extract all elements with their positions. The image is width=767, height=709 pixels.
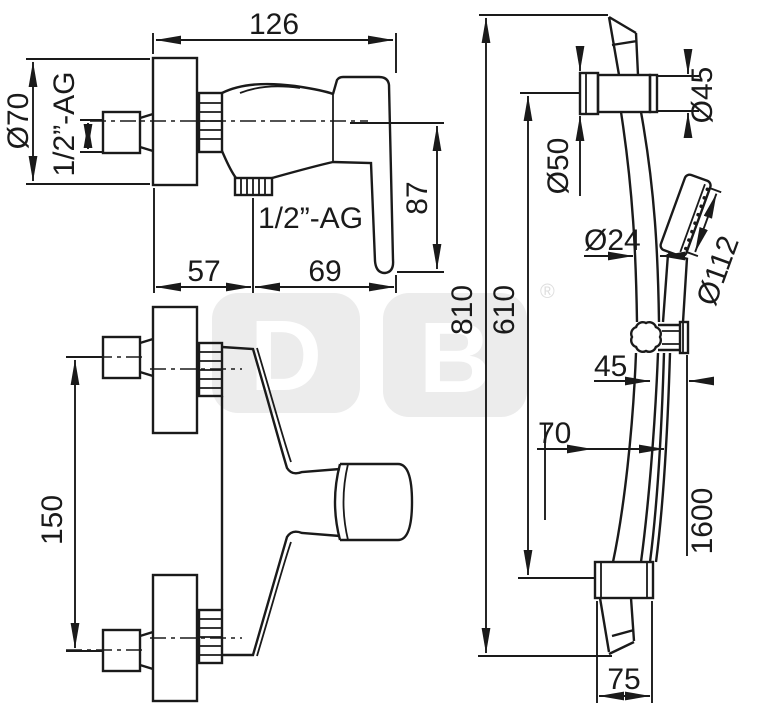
inlet-taper	[140, 114, 153, 151]
dim-flange-dia-50: Ø50	[542, 53, 580, 196]
blade-lower-inner	[257, 542, 291, 656]
spray-face-line	[680, 184, 705, 252]
watermark-letter-left: D	[250, 300, 322, 412]
mixer-body-bottom-right	[272, 162, 333, 178]
mixer-body-inner-line	[240, 86, 300, 93]
cartridge-collar	[199, 93, 222, 152]
dim-total-height-810: 810	[446, 15, 612, 656]
dim-outlet-thread: 1/2”-AG	[258, 202, 363, 235]
mixer-body-bottom-left	[222, 151, 236, 178]
outlet-thread-stub	[235, 178, 272, 195]
hand-shower-handle	[663, 254, 688, 322]
rail-tube-lower	[613, 353, 658, 562]
bottom-wall-bracket	[595, 562, 653, 598]
svg-text:Ø70: Ø70	[2, 93, 35, 150]
blade-lower-outer	[222, 532, 340, 655]
svg-text:Ø50: Ø50	[542, 138, 575, 195]
svg-text:150: 150	[36, 495, 69, 545]
dim-outlet-to-handle-69: 69	[308, 255, 341, 288]
svg-text:810: 810	[446, 285, 479, 335]
registered-mark: ®	[540, 281, 555, 303]
rail-top-end	[609, 17, 638, 75]
svg-text:87: 87	[401, 181, 434, 214]
dim-handle-drop-87: 87	[350, 123, 444, 272]
svg-text:75: 75	[607, 663, 640, 696]
dim-slider-offset-45: 45	[594, 350, 708, 383]
slider-holder	[631, 322, 688, 353]
nut-tapers	[140, 339, 153, 669]
mixer-side-view: 126 Ø70 1/2”-AG 1/2”-AG 87 57 69	[2, 8, 444, 293]
dim-bracket-width-75: 75	[597, 601, 652, 703]
lever-handle	[333, 77, 393, 273]
rail-tube-upper	[621, 112, 659, 322]
svg-text:1600: 1600	[686, 488, 719, 555]
dim-port-spacing-150: 150	[36, 357, 102, 651]
dim-wall-to-outlet-57: 57	[187, 255, 220, 288]
svg-text:1/2”-AG: 1/2”-AG	[48, 71, 81, 176]
rail-bottom-end	[600, 598, 634, 654]
technical-drawing: D B ® 126	[0, 0, 767, 709]
slider-knob	[631, 322, 661, 352]
inlet-union-nut	[103, 112, 140, 153]
handle-grip	[335, 464, 412, 540]
dim-inlet-thread: 1/2”-AG	[48, 71, 102, 176]
svg-text:70: 70	[538, 417, 571, 450]
rosette-top	[153, 307, 197, 433]
hand-shower: Ø112	[659, 173, 746, 322]
top-wall-bracket	[580, 73, 657, 114]
svg-text:Ø24: Ø24	[584, 224, 641, 257]
svg-text:610: 610	[488, 285, 521, 335]
svg-text:45: 45	[594, 350, 627, 383]
dim-wall-offset-70: 70	[537, 417, 664, 520]
collar-bottom	[199, 610, 222, 663]
svg-text:126: 126	[249, 8, 299, 41]
dim-bracket-dia-45: Ø45	[657, 54, 719, 133]
dim-width-126: 126	[153, 8, 396, 73]
svg-text:Ø45: Ø45	[686, 67, 719, 124]
dim-hose-length-1600: 1600	[686, 355, 719, 556]
